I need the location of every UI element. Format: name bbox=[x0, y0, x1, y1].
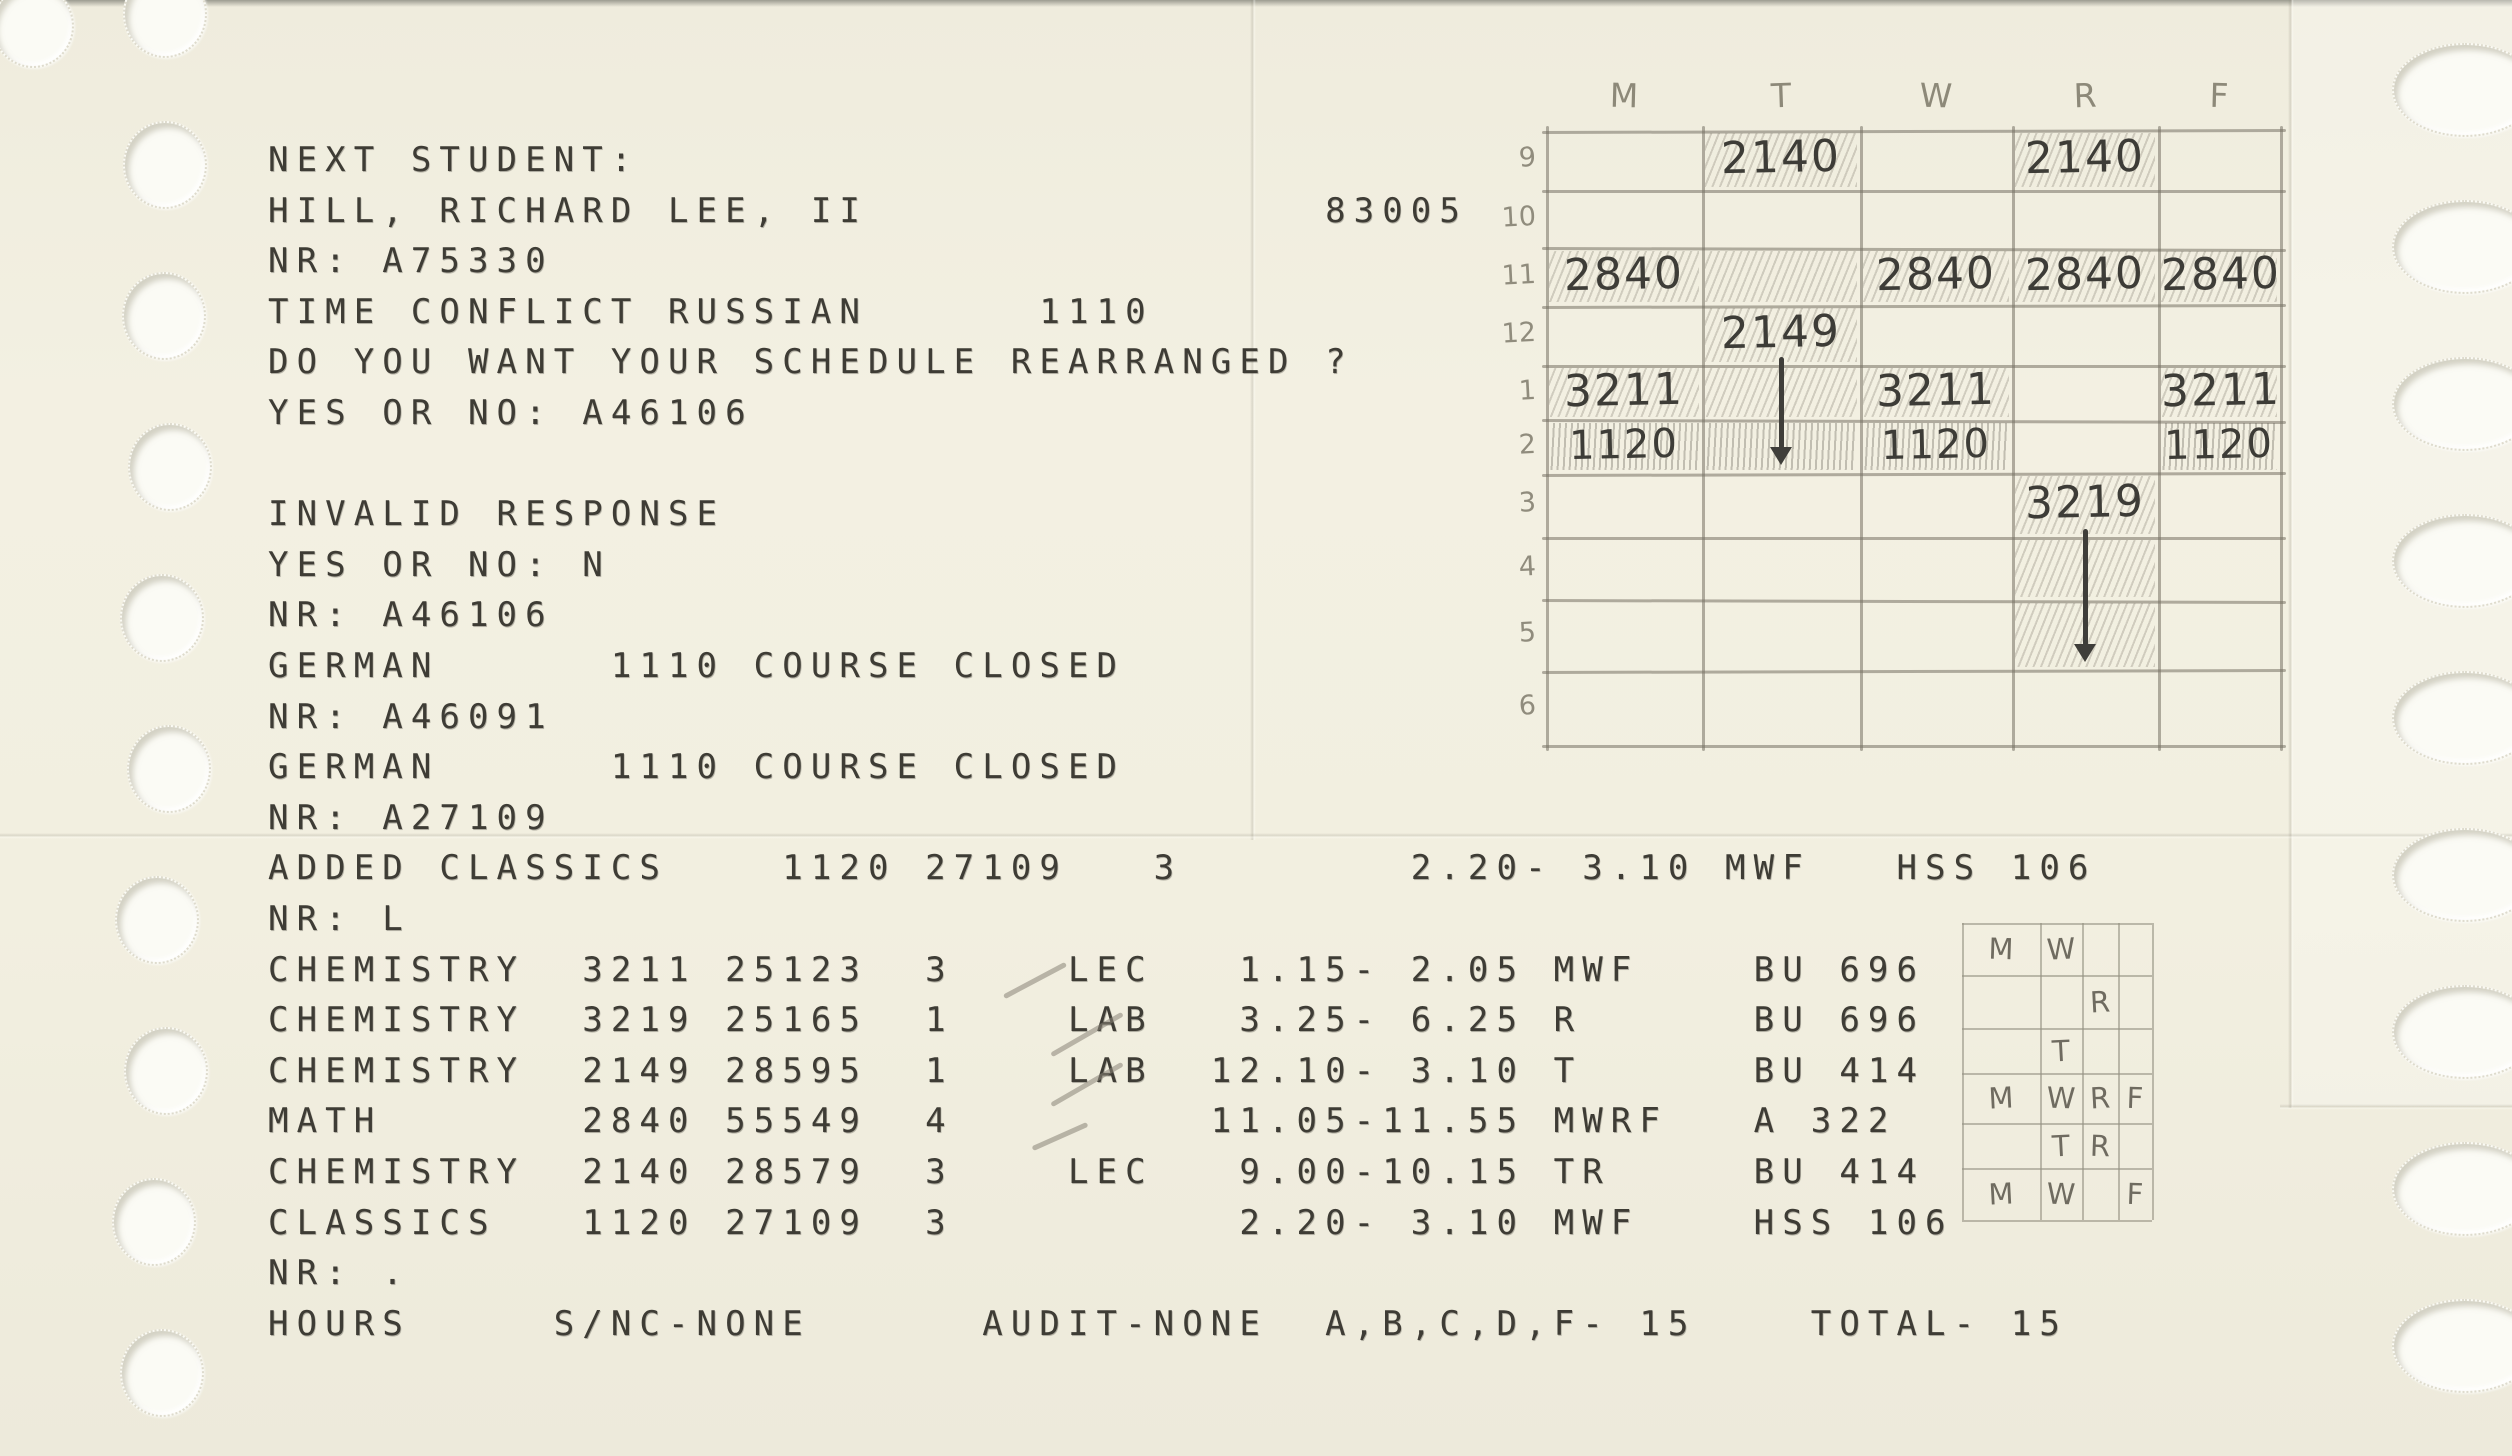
tractor-feed-hole-left bbox=[124, 1027, 208, 1115]
printout-line: TIME CONFLICT RUSSIAN 1110 bbox=[268, 290, 1154, 334]
grid-hour-label: 12 bbox=[1491, 317, 1537, 350]
paper-crease-horizontal-right bbox=[2280, 1104, 2512, 1110]
printout-line: CHEMISTRY 3211 25123 3 LEC 1.15- 2.05 MW… bbox=[268, 948, 1925, 992]
grid-entry-W1: 3211 bbox=[1862, 363, 2009, 418]
grid-entry-T9: 2140 bbox=[1704, 130, 1857, 185]
tractor-feed-hole-left bbox=[123, 0, 207, 58]
tractor-feed-hole-left bbox=[127, 725, 211, 813]
pencil-arrow-down-head bbox=[1770, 447, 1792, 465]
printout-line: CHEMISTRY 2140 28579 3 LEC 9.00-10.15 TR… bbox=[268, 1150, 1925, 1194]
grid-day-header: M bbox=[1546, 74, 1703, 117]
scanned-registration-printout: NEXT STUDENT:HILL, RICHARD LEE, II 83005… bbox=[0, 0, 2512, 1456]
grid-entry-R9: 2140 bbox=[2014, 131, 2155, 186]
printout-line: DO YOU WANT YOUR SCHEDULE REARRANGED ? bbox=[268, 340, 1354, 384]
printout-line: HOURS S/NC-NONE AUDIT-NONE A,B,C,D,F- 15… bbox=[268, 1302, 2068, 1346]
mini-grid-vline bbox=[2082, 923, 2084, 1220]
grid-entry-M11: 2840 bbox=[1548, 247, 1699, 302]
grid-hour-label: 11 bbox=[1491, 258, 1537, 291]
printout-line: CLASSICS 1120 27109 3 2.20- 3.10 MWF HSS… bbox=[268, 1201, 1954, 1245]
schedule-grid-vline bbox=[2280, 126, 2283, 751]
schedule-grid-hline bbox=[1542, 190, 2286, 193]
tractor-feed-hole-right bbox=[2392, 1299, 2512, 1393]
mini-grid-hline bbox=[1962, 1123, 2152, 1125]
mini-grid-letter: F bbox=[2117, 1176, 2152, 1211]
paper-crease-vertical-right bbox=[2288, 0, 2294, 1108]
grid-hour-label: 1 bbox=[1491, 374, 1537, 407]
pencil-arrow-down bbox=[2083, 529, 2088, 646]
grid-hour-label: 2 bbox=[1491, 428, 1537, 461]
mini-grid-hline bbox=[1962, 1220, 2152, 1222]
tractor-feed-hole-left bbox=[128, 423, 212, 511]
pencil-arrow-down bbox=[1779, 357, 1784, 449]
printout-line: NR: . bbox=[268, 1251, 411, 1295]
grid-entry-M2: 1120 bbox=[1548, 417, 1699, 472]
mini-grid-letter: R bbox=[2081, 1128, 2118, 1163]
printout-line: ADDED CLASSICS 1120 27109 3 2.20- 3.10 M… bbox=[268, 846, 2096, 890]
grid-hour-label: 3 bbox=[1491, 487, 1537, 520]
schedule-grid-hline bbox=[1542, 599, 2286, 604]
printout-line: NR: A46106 bbox=[268, 593, 554, 637]
tractor-feed-hole-left bbox=[120, 574, 204, 662]
grid-entry-W11: 2840 bbox=[1862, 247, 2009, 302]
mini-grid-vline bbox=[2152, 923, 2154, 1220]
mini-grid-vline bbox=[1962, 923, 1964, 1220]
mini-grid-hline bbox=[1962, 1073, 2152, 1075]
schedule-grid-hline bbox=[1542, 304, 2286, 309]
tractor-feed-hole-left bbox=[120, 1329, 204, 1417]
mini-grid-hline bbox=[1962, 923, 2152, 925]
printout-line: GERMAN 1110 COURSE CLOSED bbox=[268, 745, 1125, 789]
printout-line: MATH 2840 55549 4 11.05-11.55 MWRF A 322 bbox=[268, 1099, 1896, 1143]
grid-day-header: T bbox=[1701, 73, 1860, 117]
grid-entry-T12: 2149 bbox=[1704, 305, 1857, 360]
schedule-grid-hline bbox=[1542, 745, 2286, 748]
tractor-feed-hole-left bbox=[112, 1178, 196, 1266]
printout-line: CHEMISTRY 2149 28595 1 LAB 12.10- 3.10 T… bbox=[268, 1049, 1925, 1093]
mini-grid-letter: M bbox=[1961, 931, 2040, 968]
grid-hour-label: 4 bbox=[1491, 550, 1537, 583]
grid-cell-shading bbox=[1705, 251, 1857, 302]
printout-line: GERMAN 1110 COURSE CLOSED bbox=[268, 644, 1125, 688]
tractor-feed-hole-left bbox=[0, 0, 74, 68]
printout-line: NR: A75330 bbox=[268, 239, 554, 283]
printout-line: YES OR NO: N bbox=[268, 543, 611, 587]
tractor-feed-hole-left bbox=[122, 272, 206, 360]
mini-grid-letter: R bbox=[2081, 984, 2119, 1020]
printout-line: YES OR NO: A46106 bbox=[268, 391, 754, 435]
grid-entry-M1: 3211 bbox=[1548, 363, 1699, 418]
schedule-grid-hline bbox=[1542, 537, 2286, 540]
tractor-feed-hole-left bbox=[115, 876, 199, 964]
grid-hour-label: 5 bbox=[1491, 617, 1537, 650]
mini-grid-letter: T bbox=[2039, 1032, 2083, 1068]
grid-entry-W2: 1120 bbox=[1862, 417, 2009, 472]
mini-grid-letter: W bbox=[2039, 1080, 2082, 1115]
mini-grid-hline bbox=[1962, 975, 2152, 977]
pencil-arrow-down-head bbox=[2074, 644, 2096, 662]
tractor-feed-hole-right bbox=[2392, 1142, 2512, 1236]
mini-grid-letter: F bbox=[2117, 1080, 2152, 1115]
mini-grid-letter: M bbox=[1961, 1175, 2041, 1213]
mini-grid-letter: R bbox=[2081, 1080, 2119, 1116]
mini-grid-letter: M bbox=[1961, 1079, 2041, 1117]
grid-entry-R3: 3219 bbox=[2014, 476, 2155, 531]
schedule-grid-hline bbox=[1542, 472, 2286, 477]
tractor-feed-hole-left bbox=[123, 121, 207, 209]
mini-grid-hline bbox=[1962, 1168, 2152, 1170]
printout-line: CHEMISTRY 3219 25165 1 LAB 3.25- 6.25 R … bbox=[268, 998, 1925, 1042]
schedule-grid-hline bbox=[1542, 129, 2286, 134]
paper-crease-vertical-center bbox=[1250, 0, 1256, 840]
grid-entry-F1: 3211 bbox=[2160, 363, 2277, 417]
grid-hour-label: 9 bbox=[1491, 142, 1537, 175]
printout-line: HILL, RICHARD LEE, II 83005 bbox=[268, 189, 1468, 233]
grid-entry-F2: 1120 bbox=[2160, 417, 2277, 471]
mini-grid-hline bbox=[1962, 1028, 2152, 1030]
paper-torn-top-edge bbox=[0, 0, 2512, 7]
printout-line: NEXT STUDENT: bbox=[268, 138, 639, 182]
grid-entry-R11: 2840 bbox=[2014, 247, 2155, 302]
grid-hour-label: 10 bbox=[1491, 201, 1537, 234]
grid-day-header: F bbox=[2158, 74, 2281, 116]
printout-line: INVALID RESPONSE bbox=[268, 492, 725, 536]
printout-line: NR: L bbox=[268, 897, 411, 941]
printout-line: NR: A27109 bbox=[268, 796, 554, 840]
mini-grid-letter: W bbox=[2039, 1176, 2082, 1211]
schedule-grid-hline bbox=[1542, 669, 2286, 674]
mini-grid-letter: W bbox=[2039, 931, 2083, 967]
printout-line: NR: A46091 bbox=[268, 695, 554, 739]
grid-hour-label: 6 bbox=[1491, 689, 1537, 722]
grid-day-header: W bbox=[1860, 74, 2013, 117]
grid-day-header: R bbox=[2011, 73, 2158, 117]
mini-grid-letter: T bbox=[2039, 1127, 2083, 1163]
grid-entry-F11: 2840 bbox=[2160, 247, 2277, 301]
